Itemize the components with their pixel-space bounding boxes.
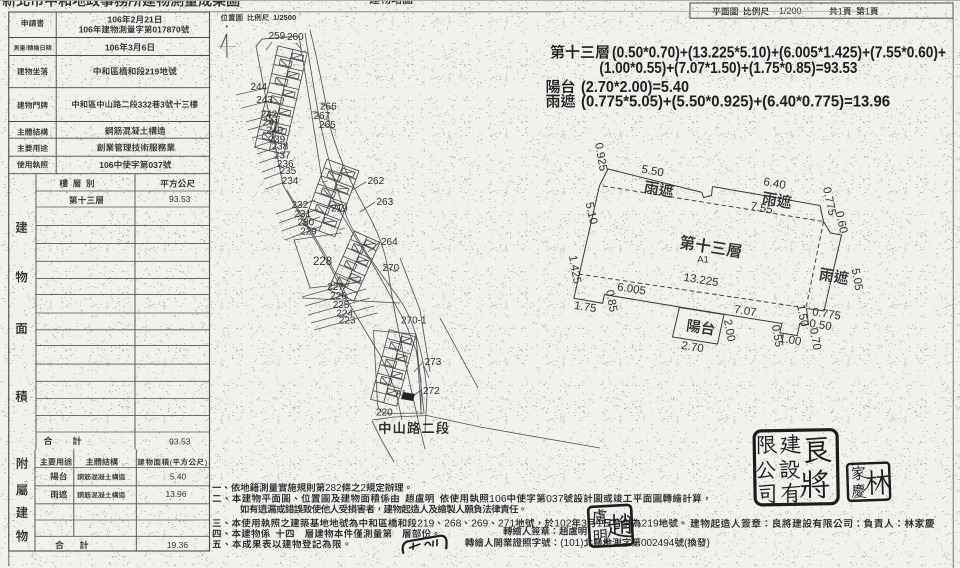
svg-text:93.53: 93.53 [169, 436, 191, 446]
svg-text:106: 106 [108, 15, 123, 25]
svg-text:234: 234 [282, 176, 299, 187]
svg-text:220: 220 [376, 408, 393, 419]
svg-text:229: 229 [300, 227, 317, 238]
svg-text:21: 21 [144, 15, 154, 25]
svg-text:5.40: 5.40 [170, 471, 187, 481]
svg-text:260: 260 [287, 32, 304, 43]
svg-text:262: 262 [368, 176, 385, 187]
svg-text:106: 106 [105, 42, 120, 52]
svg-text:3: 3 [160, 99, 165, 109]
svg-text:106: 106 [79, 25, 93, 35]
svg-text:223: 223 [339, 316, 356, 327]
svg-text:270: 270 [383, 263, 400, 274]
svg-text:2: 2 [360, 483, 366, 494]
svg-text:219: 219 [417, 519, 435, 530]
svg-text:13.96: 13.96 [166, 489, 187, 499]
svg-text:219: 219 [642, 519, 660, 530]
svg-text:017870: 017870 [152, 25, 181, 35]
svg-text:): ) [707, 538, 710, 549]
svg-text:002494: 002494 [641, 538, 675, 549]
svg-text:6: 6 [142, 42, 147, 52]
svg-text:/: / [26, 45, 28, 52]
svg-text:259: 259 [269, 31, 286, 42]
svg-text:264: 264 [381, 237, 398, 248]
svg-text:19.36: 19.36 [167, 540, 188, 550]
svg-text:A1: A1 [396, 388, 407, 398]
svg-text:219: 219 [145, 66, 160, 76]
svg-text:282: 282 [325, 483, 342, 494]
svg-text:263: 263 [377, 197, 394, 208]
svg-text:272: 272 [423, 386, 440, 397]
svg-text:(101): (101) [560, 538, 583, 549]
svg-text:228: 228 [313, 256, 332, 268]
svg-text:2: 2 [131, 15, 136, 25]
svg-text:3: 3 [128, 42, 133, 52]
svg-text:273: 273 [425, 357, 442, 368]
svg-text:244: 244 [251, 82, 268, 93]
svg-text:93.53: 93.53 [169, 194, 191, 204]
svg-text:1/2500: 1/2500 [273, 13, 296, 22]
svg-text:268: 268 [444, 519, 462, 530]
svg-text:(0.50*0.70)+(13.225*5.10)+(6.0: (0.50*0.70)+(13.225*5.10)+(6.005*1.425)+… [612, 45, 946, 62]
svg-text:037: 037 [546, 494, 564, 505]
svg-text:106: 106 [489, 494, 507, 505]
svg-text:332: 332 [138, 99, 152, 109]
svg-text:A1: A1 [697, 255, 709, 266]
svg-text:243: 243 [256, 95, 273, 106]
svg-text:(0.775*5.05)+(5.50*0.925)+(6.4: (0.775*5.05)+(5.50*0.925)+(6.40*0.775)=1… [581, 94, 890, 111]
svg-text:(1.00*0.55)+(7.07*1.50)+(1.75*: (1.00*0.55)+(7.07*1.50)+(1.75*0.85)=93.5… [599, 60, 857, 77]
svg-text:106: 106 [99, 160, 114, 170]
svg-text:219: 219 [331, 204, 348, 215]
svg-text:037: 037 [148, 160, 163, 170]
svg-text:270-1: 270-1 [401, 316, 427, 327]
svg-text:269: 269 [471, 519, 489, 530]
